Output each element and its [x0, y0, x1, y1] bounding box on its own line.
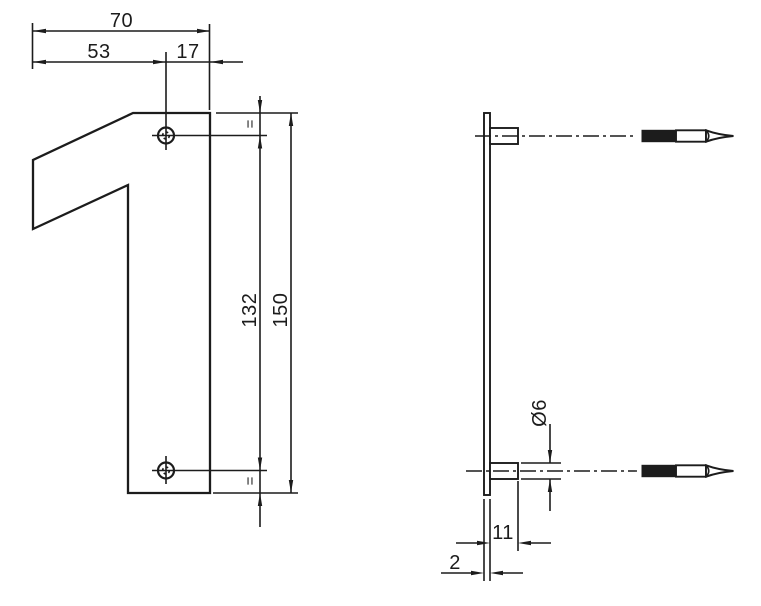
dim-label: 17	[176, 41, 199, 63]
dim-width-chain: 53 17	[33, 41, 243, 64]
arrowhead-icon	[210, 60, 223, 64]
dim-label: 2	[449, 552, 461, 574]
dim-height-total: 150	[270, 113, 293, 493]
arrowhead-icon	[258, 493, 262, 506]
front-view: 70 53 17 = 132 = 150	[33, 10, 299, 527]
side-view: Ø6 11 2	[441, 113, 734, 581]
dim-label: 11	[492, 522, 514, 544]
dim-label: 150	[270, 293, 292, 328]
arrowhead-icon	[33, 60, 46, 64]
equal-mark: =	[242, 476, 259, 485]
numeral-1-outline	[33, 113, 210, 493]
dim-label: 70	[110, 10, 133, 32]
arrowhead-icon	[258, 136, 262, 149]
dim-label: 53	[87, 41, 110, 63]
equal-mark: =	[242, 119, 259, 128]
arrowhead-icon	[490, 571, 503, 575]
dim-label: 132	[239, 293, 261, 328]
arrowhead-icon	[153, 60, 166, 64]
arrowhead-icon	[289, 113, 293, 126]
arrowhead-icon	[33, 29, 46, 33]
drawing-sheet: 70 53 17 = 132 = 150	[0, 0, 761, 606]
mounting-pin-top-icon	[642, 130, 734, 141]
dim-width-total: 70	[33, 10, 210, 33]
arrowhead-icon	[548, 450, 552, 463]
technical-drawing-canvas: 70 53 17 = 132 = 150	[0, 0, 761, 606]
arrowhead-icon	[471, 571, 484, 575]
arrowhead-icon	[289, 480, 293, 493]
mounting-pin-bottom-icon	[642, 465, 734, 476]
dim-boss-length: 11	[456, 481, 551, 551]
arrowhead-icon	[518, 541, 531, 545]
arrowhead-icon	[548, 479, 552, 492]
arrowhead-icon	[258, 458, 262, 471]
arrowhead-icon	[197, 29, 210, 33]
plate-profile	[484, 113, 490, 495]
dim-label: Ø6	[529, 399, 551, 427]
dim-pin-diameter: Ø6	[521, 399, 561, 511]
dim-height-chain: = 132 =	[239, 96, 262, 527]
arrowhead-icon	[258, 100, 262, 113]
